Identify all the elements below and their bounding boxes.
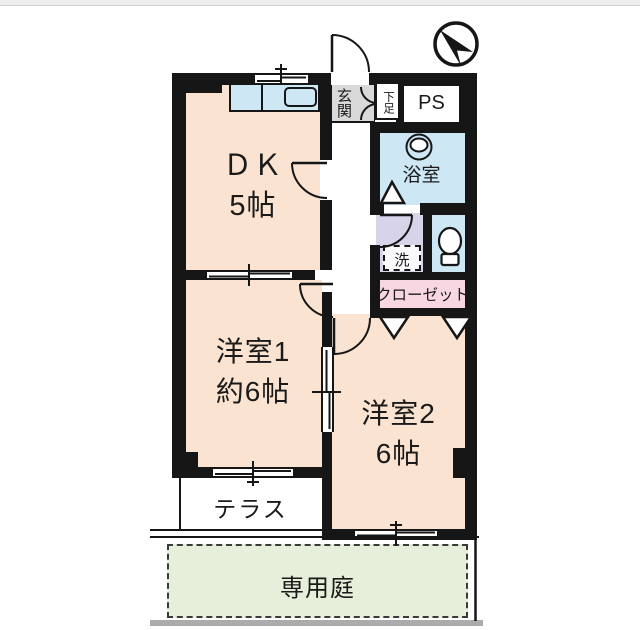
closet-label: クローゼット (376, 283, 467, 305)
western1-size: 約6帖 (184, 372, 322, 412)
garden-label: 専用庭 (167, 568, 468, 603)
laundry-label: 洗 (383, 249, 421, 270)
western2-name: 洋室2 (330, 394, 467, 434)
plan-linework (0, 0, 640, 630)
shoe-box-label: 下足 (381, 88, 394, 116)
western1-name: 洋室1 (184, 332, 322, 372)
terrace-label: テラス (179, 490, 322, 524)
western2-label: 洋室2 6帖 (330, 394, 467, 474)
western2-size: 6帖 (330, 434, 467, 474)
western1-label: 洋室1 約6帖 (184, 332, 322, 412)
compass-icon (435, 23, 477, 66)
dk-name: ＤＫ (184, 146, 322, 186)
dk-label: ＤＫ 5帖 (184, 146, 322, 226)
ps-label: PS (404, 92, 459, 115)
bathroom-label: 浴室 (376, 160, 467, 187)
floor-plan: ＤＫ 5帖 洋室1 約6帖 洋室2 6帖 玄関 下足 PS 浴室 洗 クローゼッ… (0, 0, 640, 630)
entrance-label: 玄関 (334, 87, 352, 119)
dk-size: 5帖 (184, 186, 322, 226)
